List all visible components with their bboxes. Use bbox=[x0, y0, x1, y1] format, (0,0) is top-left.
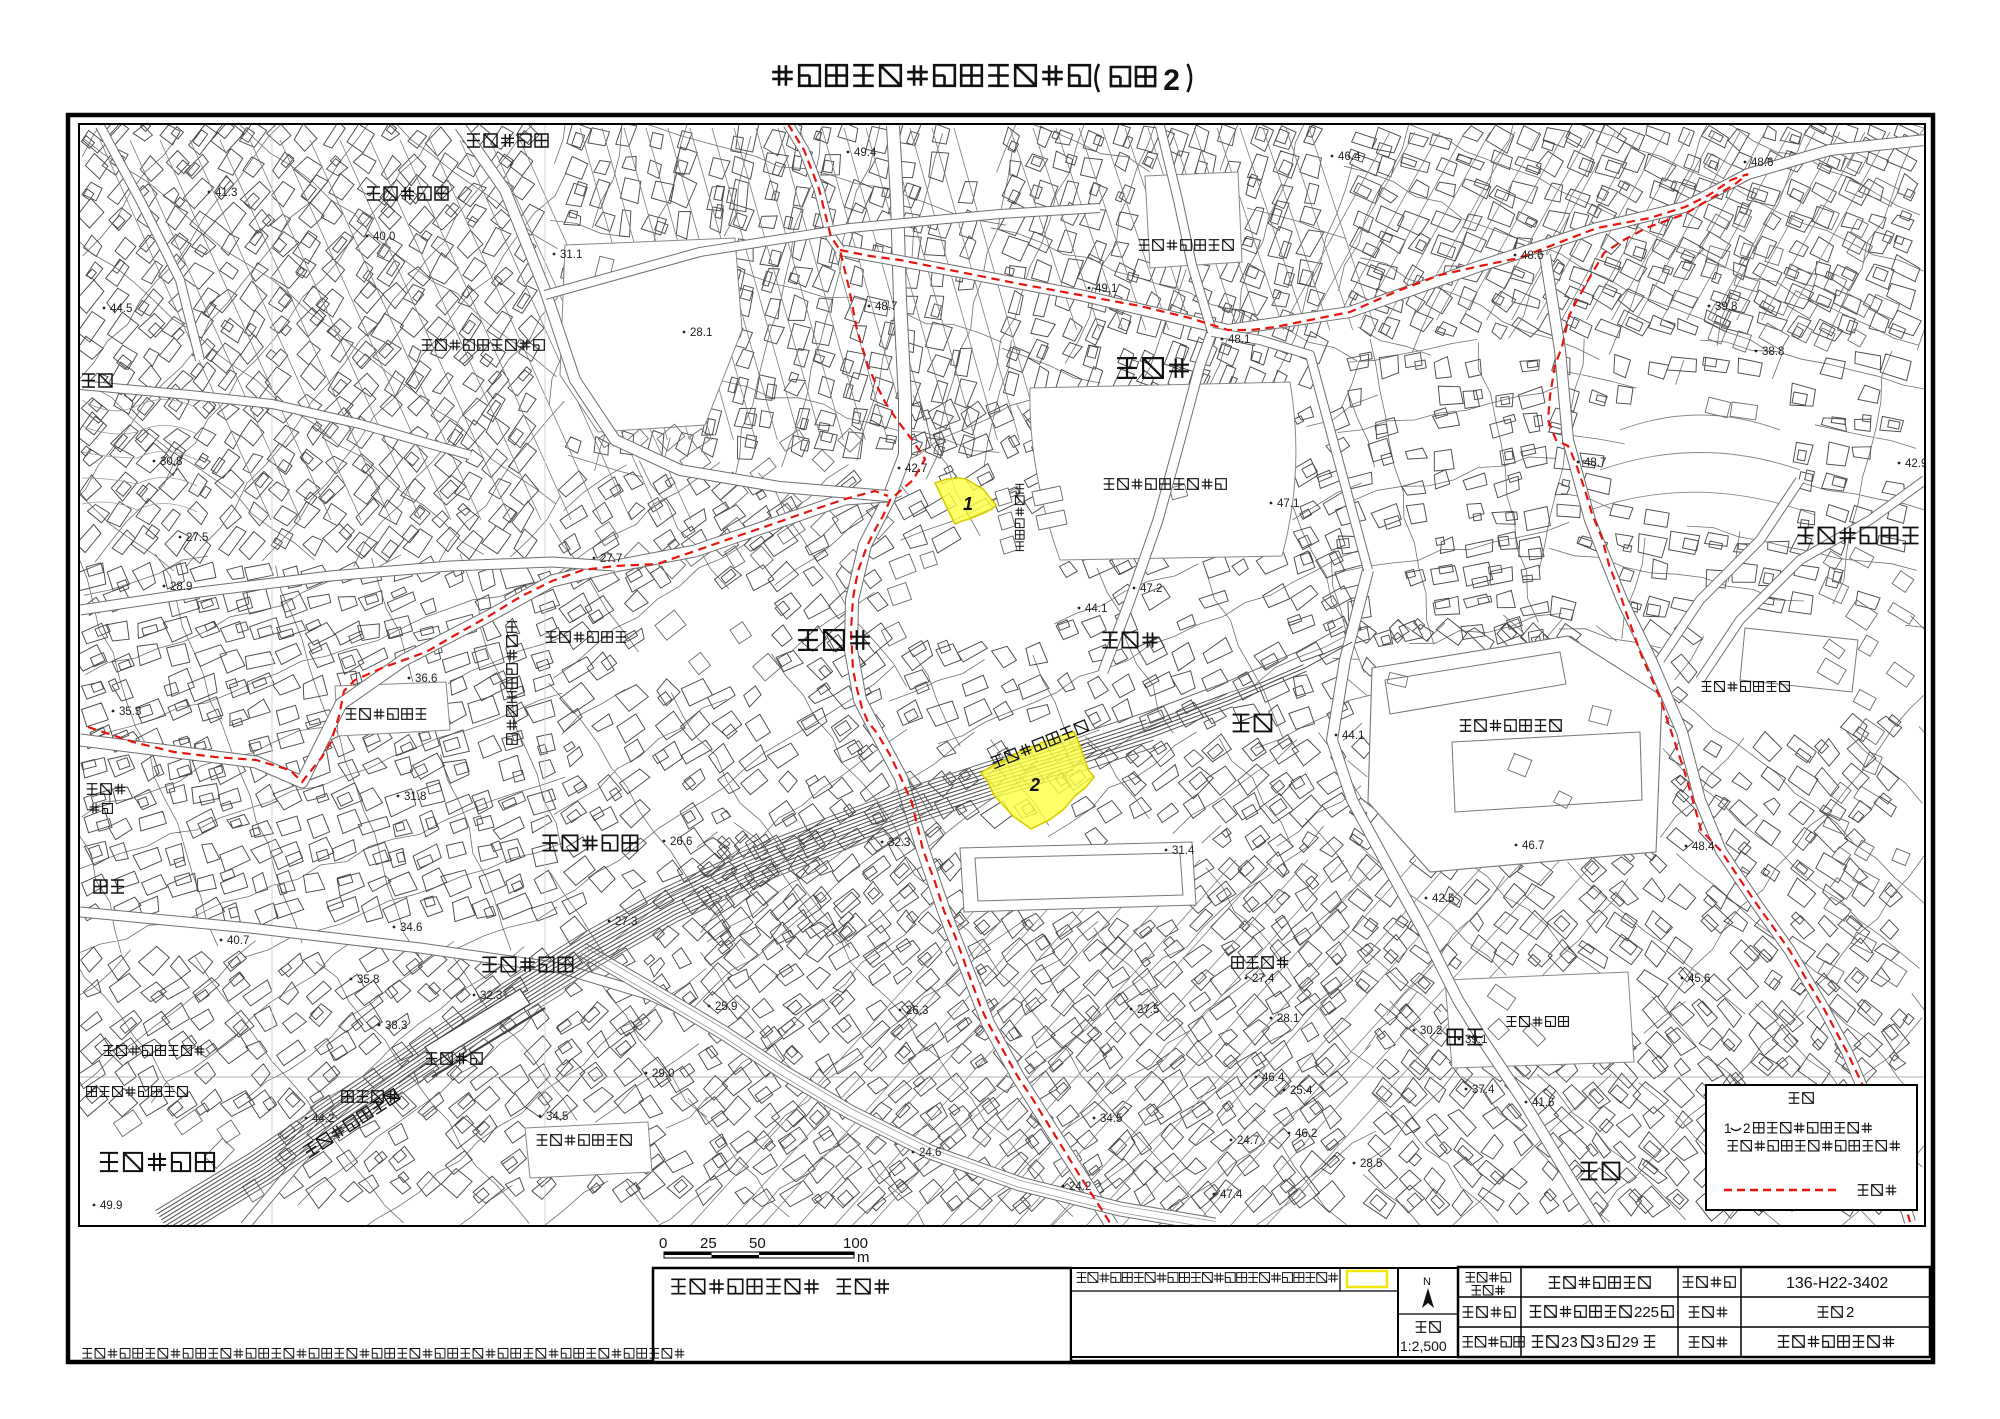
svg-text:35.3: 35.3 bbox=[119, 706, 141, 718]
svg-text:23: 23 bbox=[1561, 1334, 1578, 1351]
svg-text:34.5: 34.5 bbox=[546, 1111, 568, 1123]
svg-text:38.8: 38.8 bbox=[1762, 346, 1784, 358]
svg-text:28.1: 28.1 bbox=[1277, 1013, 1299, 1025]
svg-text:48.6: 48.6 bbox=[1521, 250, 1543, 262]
svg-text:49.1: 49.1 bbox=[1095, 283, 1117, 295]
svg-text:1:2,500: 1:2,500 bbox=[1400, 1338, 1447, 1354]
svg-text:1: 1 bbox=[1724, 1121, 1732, 1136]
svg-text:41.3: 41.3 bbox=[215, 187, 237, 199]
svg-text:30.2: 30.2 bbox=[1420, 1025, 1442, 1037]
svg-text:45.6: 45.6 bbox=[1688, 973, 1710, 985]
svg-text:2: 2 bbox=[1163, 64, 1180, 97]
svg-text:31.4: 31.4 bbox=[1172, 845, 1195, 857]
svg-text:0: 0 bbox=[659, 1235, 667, 1252]
svg-text:47.4: 47.4 bbox=[1220, 1189, 1243, 1201]
svg-text:30.8: 30.8 bbox=[160, 456, 182, 468]
svg-text:39.1: 39.1 bbox=[1465, 1034, 1487, 1046]
svg-text:29: 29 bbox=[1622, 1334, 1639, 1351]
svg-text:40.0: 40.0 bbox=[373, 231, 395, 243]
svg-text:1: 1 bbox=[963, 494, 973, 514]
svg-text:48.1: 48.1 bbox=[1228, 334, 1250, 346]
svg-text:48.7: 48.7 bbox=[1584, 457, 1606, 469]
svg-text:34.6: 34.6 bbox=[400, 922, 422, 934]
svg-text:31.1: 31.1 bbox=[560, 249, 582, 261]
svg-text:32.3: 32.3 bbox=[480, 990, 502, 1002]
svg-text:m: m bbox=[857, 1249, 870, 1266]
svg-text:136-H22-3402: 136-H22-3402 bbox=[1786, 1275, 1888, 1292]
svg-text:44.1: 44.1 bbox=[1342, 730, 1364, 742]
svg-text:27.5: 27.5 bbox=[186, 532, 208, 544]
svg-text:27.4: 27.4 bbox=[1252, 973, 1275, 985]
svg-text:46.7: 46.7 bbox=[1522, 840, 1544, 852]
svg-text:34.5: 34.5 bbox=[1100, 1113, 1122, 1125]
svg-text:48.7: 48.7 bbox=[875, 301, 897, 313]
svg-text:26.3: 26.3 bbox=[906, 1005, 928, 1017]
svg-text:27.3: 27.3 bbox=[615, 916, 637, 928]
svg-text:28.1: 28.1 bbox=[690, 327, 712, 339]
svg-text:2: 2 bbox=[1846, 1304, 1854, 1321]
svg-text:2: 2 bbox=[1743, 1121, 1751, 1136]
svg-text:N: N bbox=[1423, 1276, 1431, 1288]
svg-text:48.6: 48.6 bbox=[1751, 157, 1773, 169]
svg-text:28.9: 28.9 bbox=[170, 581, 192, 593]
svg-text:35.8: 35.8 bbox=[357, 974, 379, 986]
svg-text:24.2: 24.2 bbox=[1069, 1181, 1091, 1193]
svg-text:46.4: 46.4 bbox=[1338, 151, 1361, 163]
svg-text:25.9: 25.9 bbox=[715, 1001, 737, 1013]
svg-text:50: 50 bbox=[749, 1235, 766, 1252]
svg-text:32.3: 32.3 bbox=[888, 837, 910, 849]
svg-text:42.5: 42.5 bbox=[1432, 893, 1454, 905]
svg-text:24.6: 24.6 bbox=[919, 1147, 941, 1159]
svg-text:39.8: 39.8 bbox=[1715, 301, 1737, 313]
svg-text:49.4: 49.4 bbox=[854, 147, 877, 159]
svg-text:225: 225 bbox=[1634, 1304, 1659, 1321]
svg-text:40.7: 40.7 bbox=[227, 935, 249, 947]
svg-text:3: 3 bbox=[1596, 1334, 1604, 1351]
svg-text:44.2: 44.2 bbox=[312, 1113, 334, 1125]
svg-text:42.7: 42.7 bbox=[905, 463, 927, 475]
svg-text:36.6: 36.6 bbox=[415, 673, 437, 685]
svg-text:49.9: 49.9 bbox=[100, 1200, 122, 1212]
svg-text:41.6: 41.6 bbox=[1532, 1097, 1554, 1109]
svg-text:47.1: 47.1 bbox=[1277, 498, 1299, 510]
svg-text:27.5: 27.5 bbox=[1137, 1004, 1159, 1016]
svg-text:27.7: 27.7 bbox=[600, 553, 622, 565]
svg-text:44.5: 44.5 bbox=[110, 303, 132, 315]
svg-text:48.4: 48.4 bbox=[1692, 841, 1715, 853]
svg-text:25.4: 25.4 bbox=[1290, 1085, 1313, 1097]
svg-text:26.6: 26.6 bbox=[670, 836, 692, 848]
svg-text:46.2: 46.2 bbox=[1295, 1128, 1317, 1140]
svg-text:29.0: 29.0 bbox=[652, 1068, 674, 1080]
svg-text:46.4: 46.4 bbox=[1262, 1072, 1285, 1084]
svg-text:25: 25 bbox=[700, 1235, 717, 1252]
svg-text:37.4: 37.4 bbox=[1472, 1084, 1495, 1096]
svg-text:44.1: 44.1 bbox=[1085, 603, 1107, 615]
svg-text:47.2: 47.2 bbox=[1140, 583, 1162, 595]
svg-text:28.5: 28.5 bbox=[1360, 1158, 1382, 1170]
svg-text:2: 2 bbox=[1029, 775, 1040, 795]
svg-text:31.8: 31.8 bbox=[404, 791, 426, 803]
svg-text:24.7: 24.7 bbox=[1237, 1135, 1259, 1147]
svg-text:38.3: 38.3 bbox=[385, 1020, 407, 1032]
